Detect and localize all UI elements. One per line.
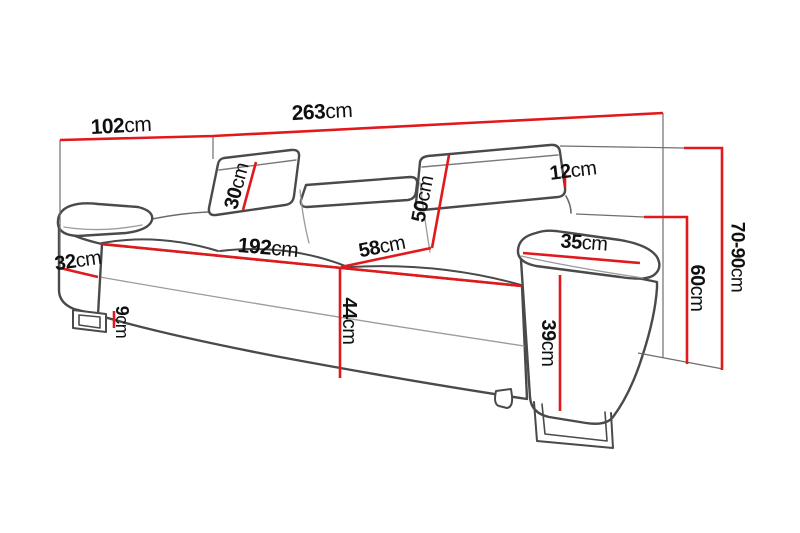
backrest-middle-bar — [301, 177, 417, 207]
ext-top-height-line — [560, 146, 684, 148]
sofa-dimension-diagram: 102cm 263cm 30cm 12cm 50cm 32cm 192cm 58… — [0, 0, 800, 533]
dim-label-35cm: 35cm — [560, 231, 608, 254]
dim-label-263cm: 263cm — [291, 100, 353, 124]
backrest-left-top-edge — [152, 212, 208, 219]
dim-label-44cm: 44cm — [339, 298, 359, 345]
dim-value: 70-90 — [727, 222, 748, 268]
dim-value: 35 — [560, 230, 583, 253]
dim-label-70-90cm: 70-90cm — [728, 222, 747, 292]
dim-line-70-90 — [684, 148, 722, 370]
dim-unit: cm — [569, 157, 597, 182]
dim-unit: cm — [537, 341, 559, 367]
dim-unit: cm — [74, 247, 102, 272]
dim-value: 102 — [90, 114, 125, 139]
dim-label-12cm: 12cm — [548, 158, 597, 184]
middle-leg — [495, 389, 512, 408]
dim-value: 39 — [537, 320, 559, 341]
dim-unit: cm — [338, 319, 360, 345]
dim-unit: cm — [270, 237, 299, 262]
dim-unit: cm — [124, 113, 152, 137]
left-bracket-leg — [73, 310, 106, 332]
backrest-right-edge — [566, 196, 571, 213]
dim-value: 192 — [237, 234, 272, 260]
dim-label-9cm: 9cm — [113, 306, 131, 339]
sofa-base — [76, 244, 527, 399]
left-arm-pillow — [58, 203, 152, 236]
dim-label-192cm: 192cm — [237, 235, 299, 261]
dim-unit: cm — [727, 268, 748, 292]
dim-unit: cm — [112, 315, 132, 338]
sofa-outline — [58, 145, 659, 448]
dim-unit: cm — [581, 232, 608, 256]
dim-value: 9 — [112, 306, 132, 316]
dim-value: 12 — [548, 160, 572, 184]
base-front-face — [76, 244, 527, 399]
dim-unit: cm — [686, 286, 708, 312]
dim-value: 44 — [338, 298, 360, 319]
dim-label-102cm: 102cm — [90, 114, 152, 138]
dim-value: 60 — [686, 265, 708, 286]
sofa-line-art — [0, 0, 800, 533]
ext-floor-line — [638, 353, 723, 369]
ext-arm-height-line — [576, 214, 644, 217]
dim-unit: cm — [325, 99, 353, 123]
dim-value: 263 — [291, 100, 326, 125]
backrest — [152, 145, 571, 252]
dim-label-39cm: 39cm — [538, 320, 558, 367]
dim-label-60cm: 60cm — [687, 265, 707, 312]
